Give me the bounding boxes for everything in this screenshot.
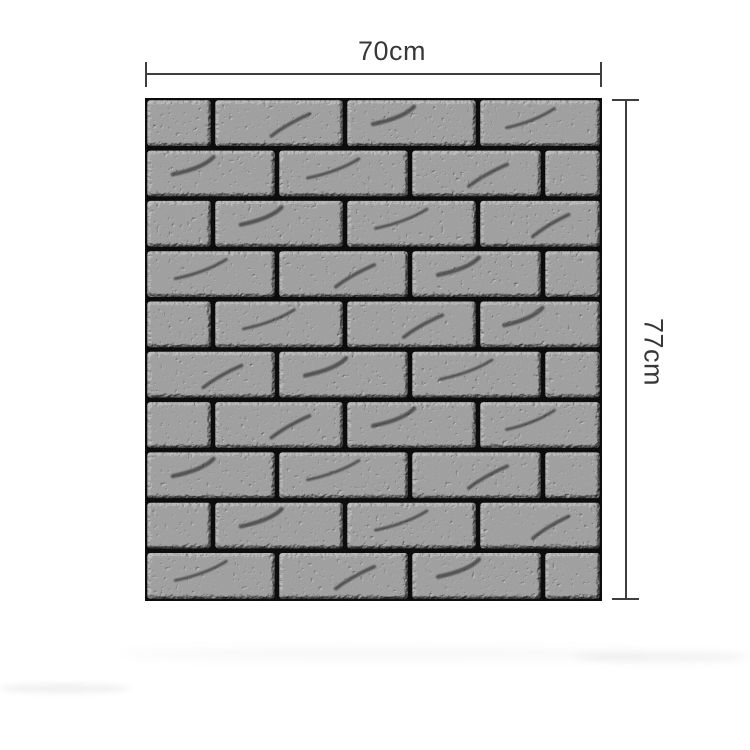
height-dimension-label: 77cm bbox=[640, 318, 667, 386]
floor-reflection-right bbox=[575, 652, 750, 662]
brick-wall-panel bbox=[145, 98, 602, 601]
product-image-stage: 70cm 77cm bbox=[0, 0, 750, 750]
width-dimension-label: 70cm bbox=[358, 38, 426, 65]
brick-texture-svg bbox=[145, 98, 602, 601]
width-dimension-line bbox=[145, 73, 602, 75]
floor-smudge-left bbox=[0, 684, 130, 693]
floor-reflection bbox=[120, 648, 650, 660]
height-dimension-line bbox=[625, 99, 627, 600]
